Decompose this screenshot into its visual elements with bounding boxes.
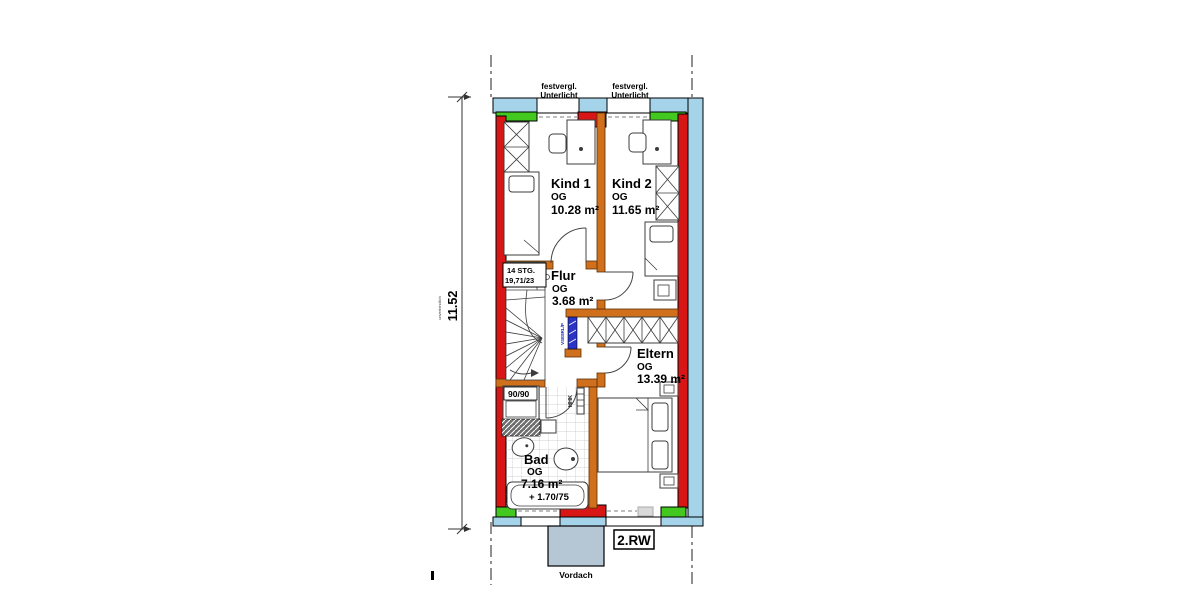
left-window-label-2: Unterlicht [540, 91, 578, 100]
floor-plan-drawing: 11.52 unverbindlich [0, 0, 1200, 600]
right-window-label-1: festvergl. [612, 82, 648, 91]
bottom-green-right [661, 507, 686, 517]
right-glass-band [688, 98, 703, 526]
kind2-chair-icon [629, 133, 646, 152]
washing-machine-icon [502, 419, 556, 436]
canopy-rect [548, 526, 604, 566]
rw-label: 2.RW [617, 533, 651, 548]
eltern-bed-icon [598, 398, 672, 472]
kind2-wardrobe-icon [656, 166, 679, 220]
eltern-furniture [588, 317, 678, 488]
wall-eltern-pier [597, 373, 605, 387]
kind1-level: OG [551, 192, 567, 203]
eltern-area: 13.39 m² [637, 372, 685, 386]
towel-radiator-label: HHK [568, 395, 574, 407]
top-window-labels: festvergl. Unterlicht festvergl. Unterli… [540, 82, 649, 100]
kind2-level: OG [612, 192, 628, 203]
canopy-label: Vordach [559, 570, 592, 580]
kind1-desk-icon [567, 120, 595, 164]
kind1-wardrobe-icon [504, 122, 529, 172]
left-window-label-1: festvergl. [541, 82, 577, 91]
wall-bad-top-b [577, 379, 597, 387]
kind1-bed-icon [504, 172, 539, 255]
flur-area: 3.68 m² [552, 294, 593, 308]
kind2-desk-icon [643, 120, 671, 164]
flur-name: Flur [551, 268, 576, 283]
right-window-label-2: Unterlicht [611, 91, 649, 100]
stair-label-line1: 14 STG. [507, 266, 535, 275]
bathtub-size-label: + 1.70/75 [529, 492, 570, 503]
kind2-door [605, 272, 633, 300]
dimension-value: 11.52 [446, 291, 460, 322]
towel-radiator-icon [577, 388, 584, 414]
wall-kind1-flur-b [586, 261, 597, 269]
kind2-area: 11.65 m² [612, 203, 659, 217]
eltern-door [605, 347, 631, 373]
bad-name: Bad [524, 452, 549, 467]
floor-plan-page: 11.52 unverbindlich [0, 0, 1200, 600]
wall-flur-kind2-pier [597, 300, 605, 309]
kind1-chair-icon [549, 134, 566, 153]
shower-size-label: 90/90 [508, 389, 530, 399]
flur-radiator [568, 317, 577, 349]
kind1-area: 10.28 m² [551, 203, 599, 217]
bad-area: 7.16 m² [521, 477, 562, 491]
wall-kind2-eltern [566, 309, 678, 317]
dimension-note: unverbindlich [437, 296, 442, 320]
kind2-bed-icon [645, 222, 678, 276]
radiator-code-label: VSE8RL/P [560, 323, 565, 345]
stair-label-line2: 19,71/23 [505, 276, 534, 285]
kind1-door [551, 228, 586, 263]
eltern-name: Eltern [637, 346, 674, 361]
kind1-name: Kind 1 [551, 176, 591, 191]
eltern-closet-icon [588, 317, 678, 343]
eltern-nightstand-bottom-icon [660, 474, 678, 488]
kind2-name: Kind 2 [612, 176, 652, 191]
toilet-icon [554, 448, 578, 470]
wall-kind1-kind2 [597, 113, 605, 272]
canopy: Vordach [548, 526, 604, 580]
shower-icon: 90/90 [503, 386, 539, 420]
radiator-cap-bottom [565, 349, 581, 357]
wall-bad-eltern [589, 387, 597, 508]
rw-tag: 2.RW [614, 530, 654, 549]
staircase: 14 STG. 19,71/23 [503, 262, 550, 380]
frame-tick [431, 571, 434, 580]
kind2-nightstand-icon [654, 280, 676, 300]
